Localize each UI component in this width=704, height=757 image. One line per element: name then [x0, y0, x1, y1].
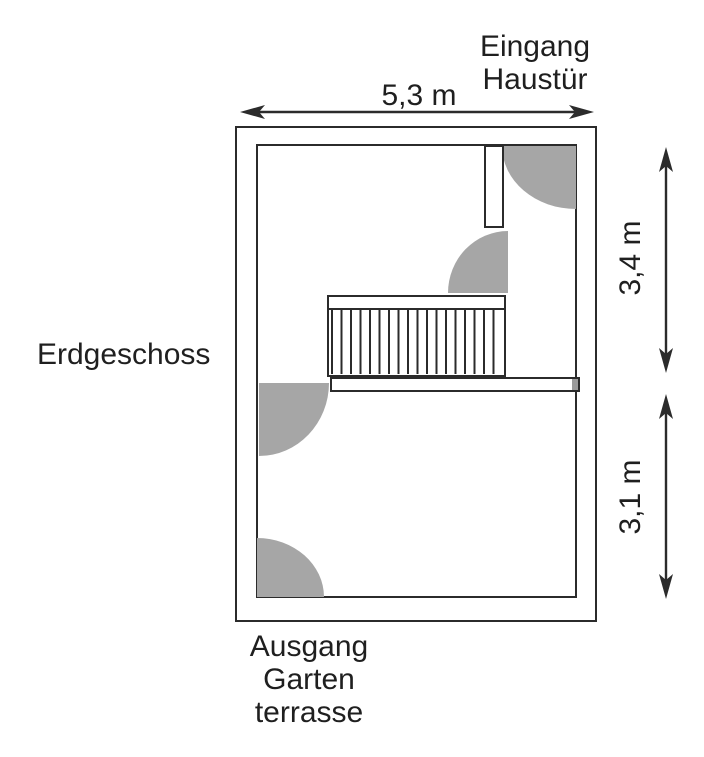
stair-rail-cap — [572, 379, 578, 390]
floor-label: Erdgeschoss — [37, 339, 210, 371]
stair-landing — [329, 297, 504, 310]
exit-label-line1: Ausgang — [209, 630, 409, 663]
exit-label-line3: terrasse — [209, 696, 409, 729]
width-dimension-arrow — [238, 103, 596, 121]
dim-lower-height-label: 3,1 m — [615, 459, 647, 534]
lower-height-dimension-arrow — [655, 391, 677, 602]
staircase — [327, 295, 506, 377]
exit-label: Ausgang Garten terrasse — [209, 630, 409, 729]
entrance-label-line1: Eingang — [460, 30, 610, 63]
upper-height-dimension-arrow — [655, 144, 677, 376]
dim-upper-height-label: 3,4 m — [615, 220, 647, 295]
stair-treads — [331, 310, 502, 374]
stair-rail — [330, 377, 580, 392]
floorplan-page: { "plan": { "floor_label": "Erdgeschoss"… — [0, 0, 704, 757]
entrance-door-leaf — [484, 145, 504, 228]
exit-label-line2: Garten — [209, 663, 409, 696]
